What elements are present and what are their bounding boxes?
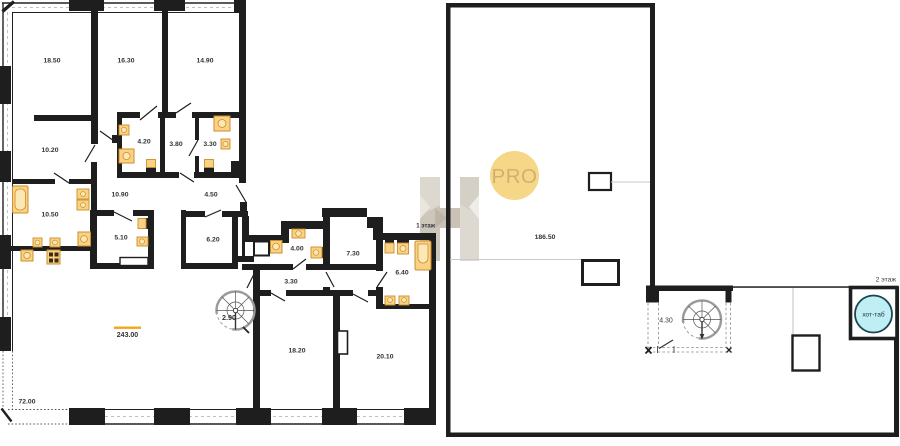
svg-text:10.90: 10.90 bbox=[111, 192, 128, 199]
svg-text:3.30: 3.30 bbox=[284, 279, 297, 286]
svg-text:2 этаж: 2 этаж bbox=[876, 277, 897, 284]
svg-text:7.30: 7.30 bbox=[346, 251, 359, 258]
svg-text:18.50: 18.50 bbox=[43, 58, 60, 65]
svg-text:PRO: PRO bbox=[492, 165, 538, 188]
svg-text:6.40: 6.40 bbox=[395, 270, 408, 277]
svg-text:14.90: 14.90 bbox=[196, 58, 213, 65]
svg-text:16.30: 16.30 bbox=[117, 58, 134, 65]
svg-text:4.30: 4.30 bbox=[659, 318, 673, 325]
svg-text:5.10: 5.10 bbox=[114, 235, 127, 242]
svg-text:4.00: 4.00 bbox=[290, 246, 303, 253]
svg-text:20.10: 20.10 bbox=[376, 354, 393, 361]
svg-text:10.20: 10.20 bbox=[41, 147, 58, 154]
svg-text:6.20: 6.20 bbox=[206, 237, 219, 244]
svg-text:243.00: 243.00 bbox=[117, 332, 139, 339]
svg-text:4.20: 4.20 bbox=[137, 139, 150, 146]
svg-text:10.50: 10.50 bbox=[41, 212, 58, 219]
svg-text:1 этаж: 1 этаж bbox=[416, 224, 436, 230]
svg-text:72.00: 72.00 bbox=[18, 399, 35, 406]
svg-text:2.90: 2.90 bbox=[222, 313, 236, 322]
svg-text:3.30: 3.30 bbox=[203, 141, 216, 148]
svg-text:3.80: 3.80 bbox=[169, 141, 182, 148]
svg-text:186.50: 186.50 bbox=[535, 234, 556, 241]
svg-text:4.50: 4.50 bbox=[204, 192, 217, 199]
svg-text:18.20: 18.20 bbox=[288, 348, 305, 355]
svg-text:хот-таб: хот-таб bbox=[862, 311, 885, 319]
